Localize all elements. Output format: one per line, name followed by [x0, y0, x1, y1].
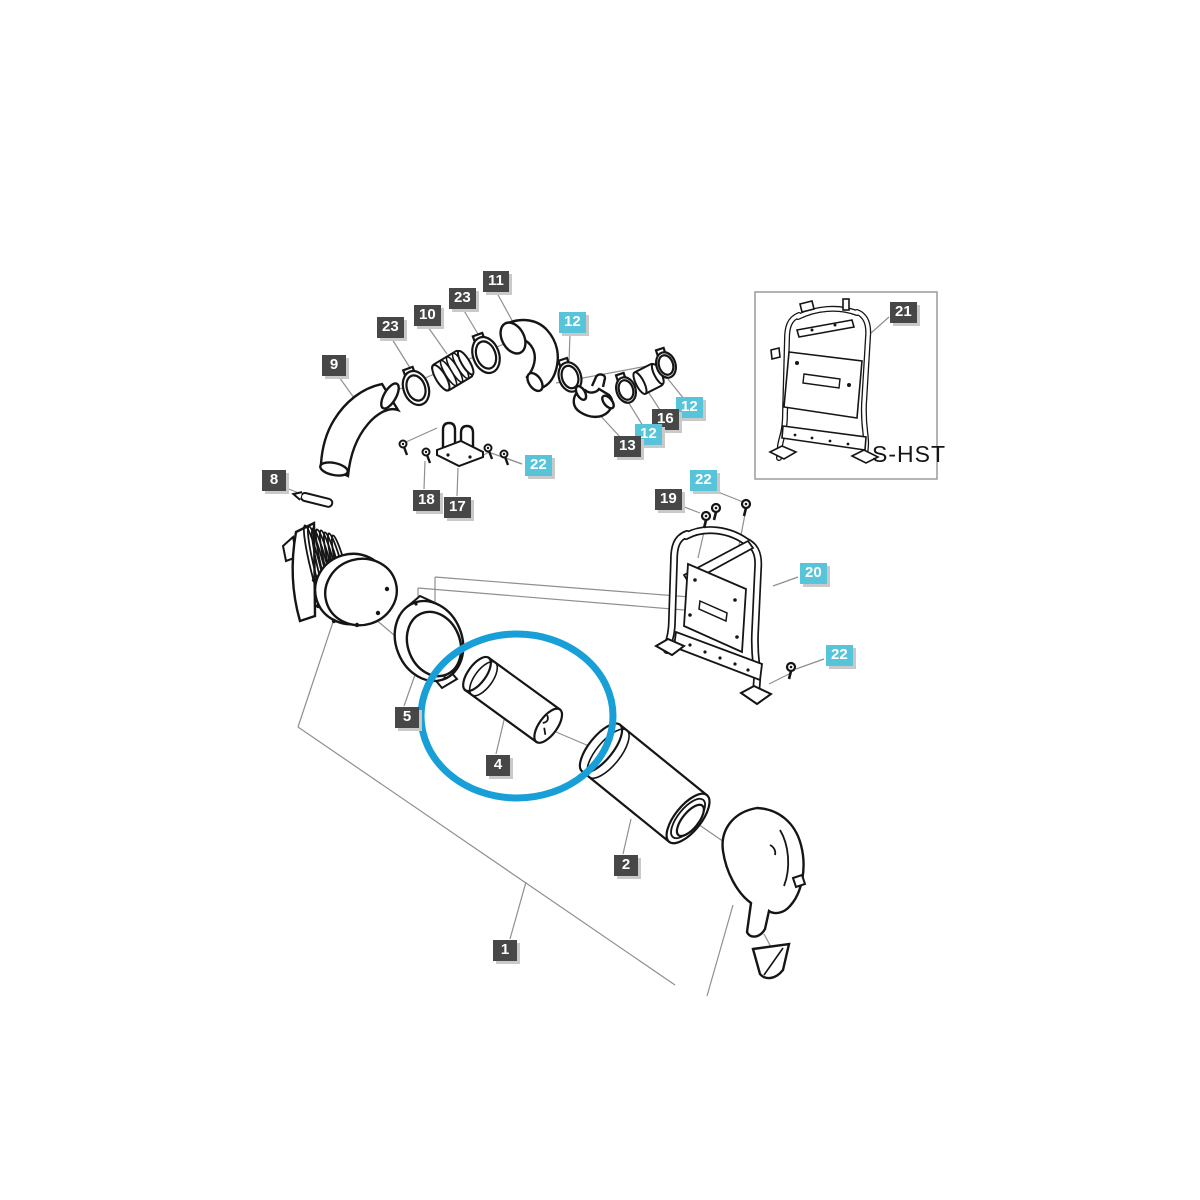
part-callout-23: 23: [377, 317, 404, 338]
part-dust-valve: [753, 944, 789, 978]
part-callout-22: 22: [525, 455, 552, 476]
part-callout-23: 23: [449, 288, 476, 309]
part-23-clamp-left: [397, 364, 434, 409]
part-end-cover: [723, 808, 805, 937]
inset-caption: S-HST: [872, 441, 946, 468]
part-callout-12: 12: [676, 397, 703, 418]
part-callout-5: 5: [395, 707, 419, 728]
part-housing-body: [283, 523, 405, 634]
part-17-bracket: [437, 423, 483, 466]
part-callout-12: 12: [559, 312, 586, 333]
part-10-connector: [429, 348, 477, 393]
part-callout-4: 4: [486, 755, 510, 776]
part-2-main-filter: [573, 717, 717, 850]
part-callout-21: 21: [890, 302, 917, 323]
part-callout-17: 17: [444, 497, 471, 518]
part-11-elbow-hose: [496, 318, 558, 393]
part-callout-22: 22: [690, 470, 717, 491]
part-callout-2: 2: [614, 855, 638, 876]
part-21-frame: [770, 299, 878, 463]
part-callout-9: 9: [322, 355, 346, 376]
part-callout-20: 20: [800, 563, 827, 584]
part-callout-13: 13: [614, 436, 641, 457]
part-callout-18: 18: [413, 490, 440, 511]
part-4-inner-filter: [458, 653, 567, 748]
part-callout-10: 10: [414, 305, 441, 326]
part-9-elbow-hose: [319, 381, 402, 478]
part-callout-19: 19: [655, 489, 682, 510]
part-callout-8: 8: [262, 470, 286, 491]
diagram-line-art: [0, 0, 1200, 1200]
parts-diagram-stage: 2310231112912161213822181719222021225421…: [0, 0, 1200, 1200]
part-callout-11: 11: [483, 271, 509, 292]
part-20-frame: [656, 530, 771, 704]
part-callout-22: 22: [826, 645, 853, 666]
part-callout-1: 1: [493, 940, 517, 961]
construction-lines: [298, 337, 771, 996]
part-8-pin: [292, 490, 333, 507]
